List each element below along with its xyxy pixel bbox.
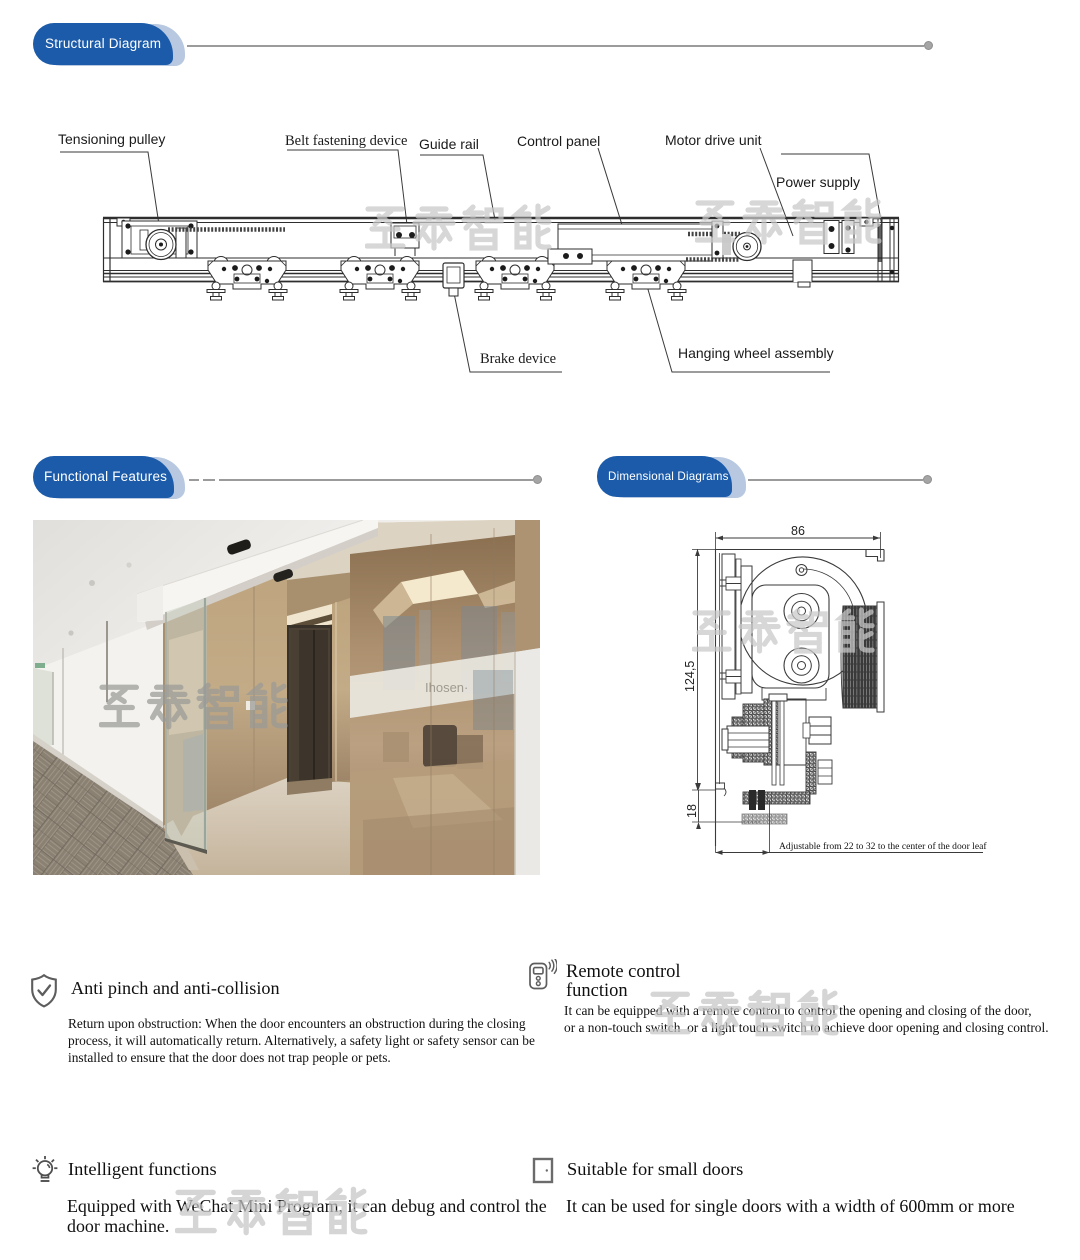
svg-text:Ihosen·: Ihosen· bbox=[425, 680, 468, 695]
svg-text:18: 18 bbox=[685, 804, 699, 818]
svg-text:86: 86 bbox=[791, 524, 805, 538]
svg-text:Hanging wheel assembly: Hanging wheel assembly bbox=[678, 345, 834, 361]
svg-text:Brake device: Brake device bbox=[480, 351, 556, 367]
svg-text:Guide rail: Guide rail bbox=[419, 136, 479, 152]
svg-text:124,5: 124,5 bbox=[683, 661, 697, 692]
svg-text:Motor drive unit: Motor drive unit bbox=[665, 132, 762, 148]
svg-text:Adjustable from 22 to 32 to th: Adjustable from 22 to 32 to the center o… bbox=[779, 841, 987, 852]
svg-text:Control panel: Control panel bbox=[517, 133, 600, 149]
svg-text:Power supply: Power supply bbox=[776, 174, 860, 190]
svg-text:Tensioning pulley: Tensioning pulley bbox=[58, 131, 165, 147]
svg-text:Belt fastening device: Belt fastening device bbox=[285, 133, 407, 149]
